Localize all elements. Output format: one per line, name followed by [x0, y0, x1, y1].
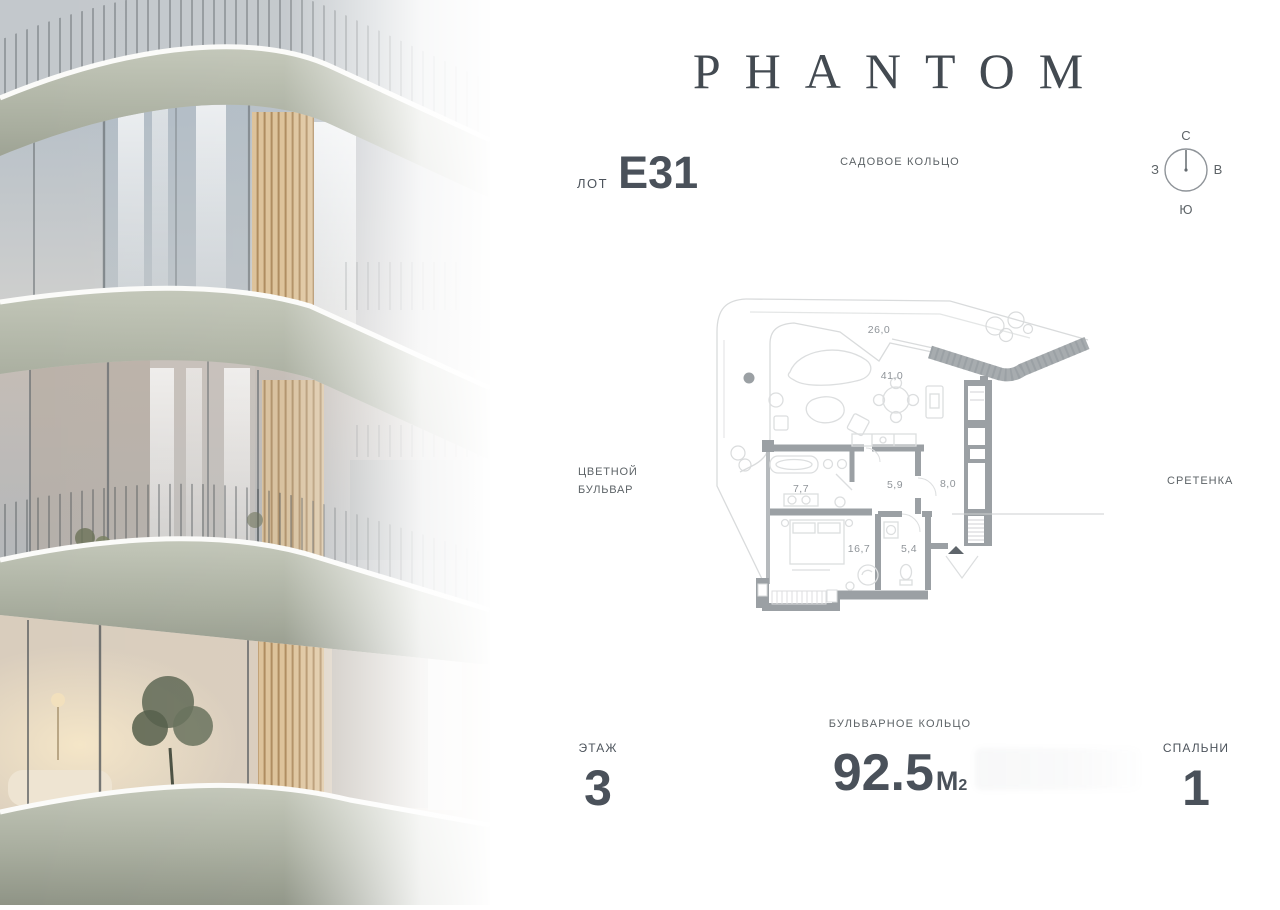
entry-door-swing	[946, 556, 978, 578]
street-label-right: СРЕТЕНКА	[1167, 475, 1233, 487]
bedrooms-label: СПАЛЬНИ	[1136, 741, 1256, 755]
street-left-line2: БУЛЬВАР	[578, 481, 638, 499]
area-unit-sup: 2	[958, 778, 967, 794]
area-stat: 92.5М2	[640, 741, 1160, 799]
compass-north: С	[1181, 128, 1190, 143]
living-furniture	[769, 350, 943, 446]
room-area-living: 41,0	[881, 370, 903, 382]
street-label-left: ЦВЕТНОЙ БУЛЬВАР	[578, 463, 638, 499]
area-unit: М	[936, 766, 959, 797]
room-area-corridor: 8,0	[940, 478, 956, 490]
floor-label: ЭТАЖ	[566, 741, 630, 755]
compass-rose-icon: С Ю З В	[1145, 122, 1229, 218]
area-value: 92.5	[833, 747, 934, 799]
door-arc	[918, 478, 936, 496]
room-area-hall: 5,9	[887, 479, 903, 491]
compass: С Ю З В	[1145, 122, 1229, 223]
brand-logo: PHANTOM	[630, 42, 1170, 100]
compass-west: З	[1151, 162, 1159, 177]
wardrobe-hatch	[772, 591, 826, 604]
entry-arrow-icon	[948, 546, 964, 554]
lot-label: ЛОТ	[577, 176, 608, 191]
floor-value: 3	[566, 763, 630, 813]
floor-stat: ЭТАЖ 3	[566, 741, 630, 813]
street-left-line1: ЦВЕТНОЙ	[578, 463, 638, 481]
street-label-top: САДОВОЕ КОЛЬЦО	[640, 156, 1160, 168]
room-area-terrace: 26,0	[868, 324, 890, 336]
street-label-bottom: БУЛЬВАРНОЕ КОЛЬЦО	[640, 718, 1160, 730]
photo-fade-overlay	[0, 0, 490, 905]
room-area-bedroom: 16,7	[848, 543, 870, 555]
building-render-photo	[0, 0, 490, 905]
room-area-wc: 5,4	[901, 543, 917, 555]
bathroom-fixtures	[770, 456, 852, 507]
floorplan: 26,0 41,0 7,7 5,9 8,0 16,7 5,4	[700, 288, 1120, 628]
room-area-bathroom: 7,7	[793, 483, 809, 495]
compass-south: Ю	[1179, 202, 1192, 217]
bedrooms-stat: СПАЛЬНИ 1	[1136, 741, 1256, 813]
building-render-graphic	[0, 0, 490, 905]
floorplan-drawing: 26,0 41,0 7,7 5,9 8,0 16,7 5,4	[700, 288, 1120, 623]
bedrooms-value: 1	[1136, 763, 1256, 813]
structural-column	[744, 373, 755, 384]
compass-east: В	[1214, 162, 1223, 177]
stair-elevator-shaft	[964, 380, 992, 546]
